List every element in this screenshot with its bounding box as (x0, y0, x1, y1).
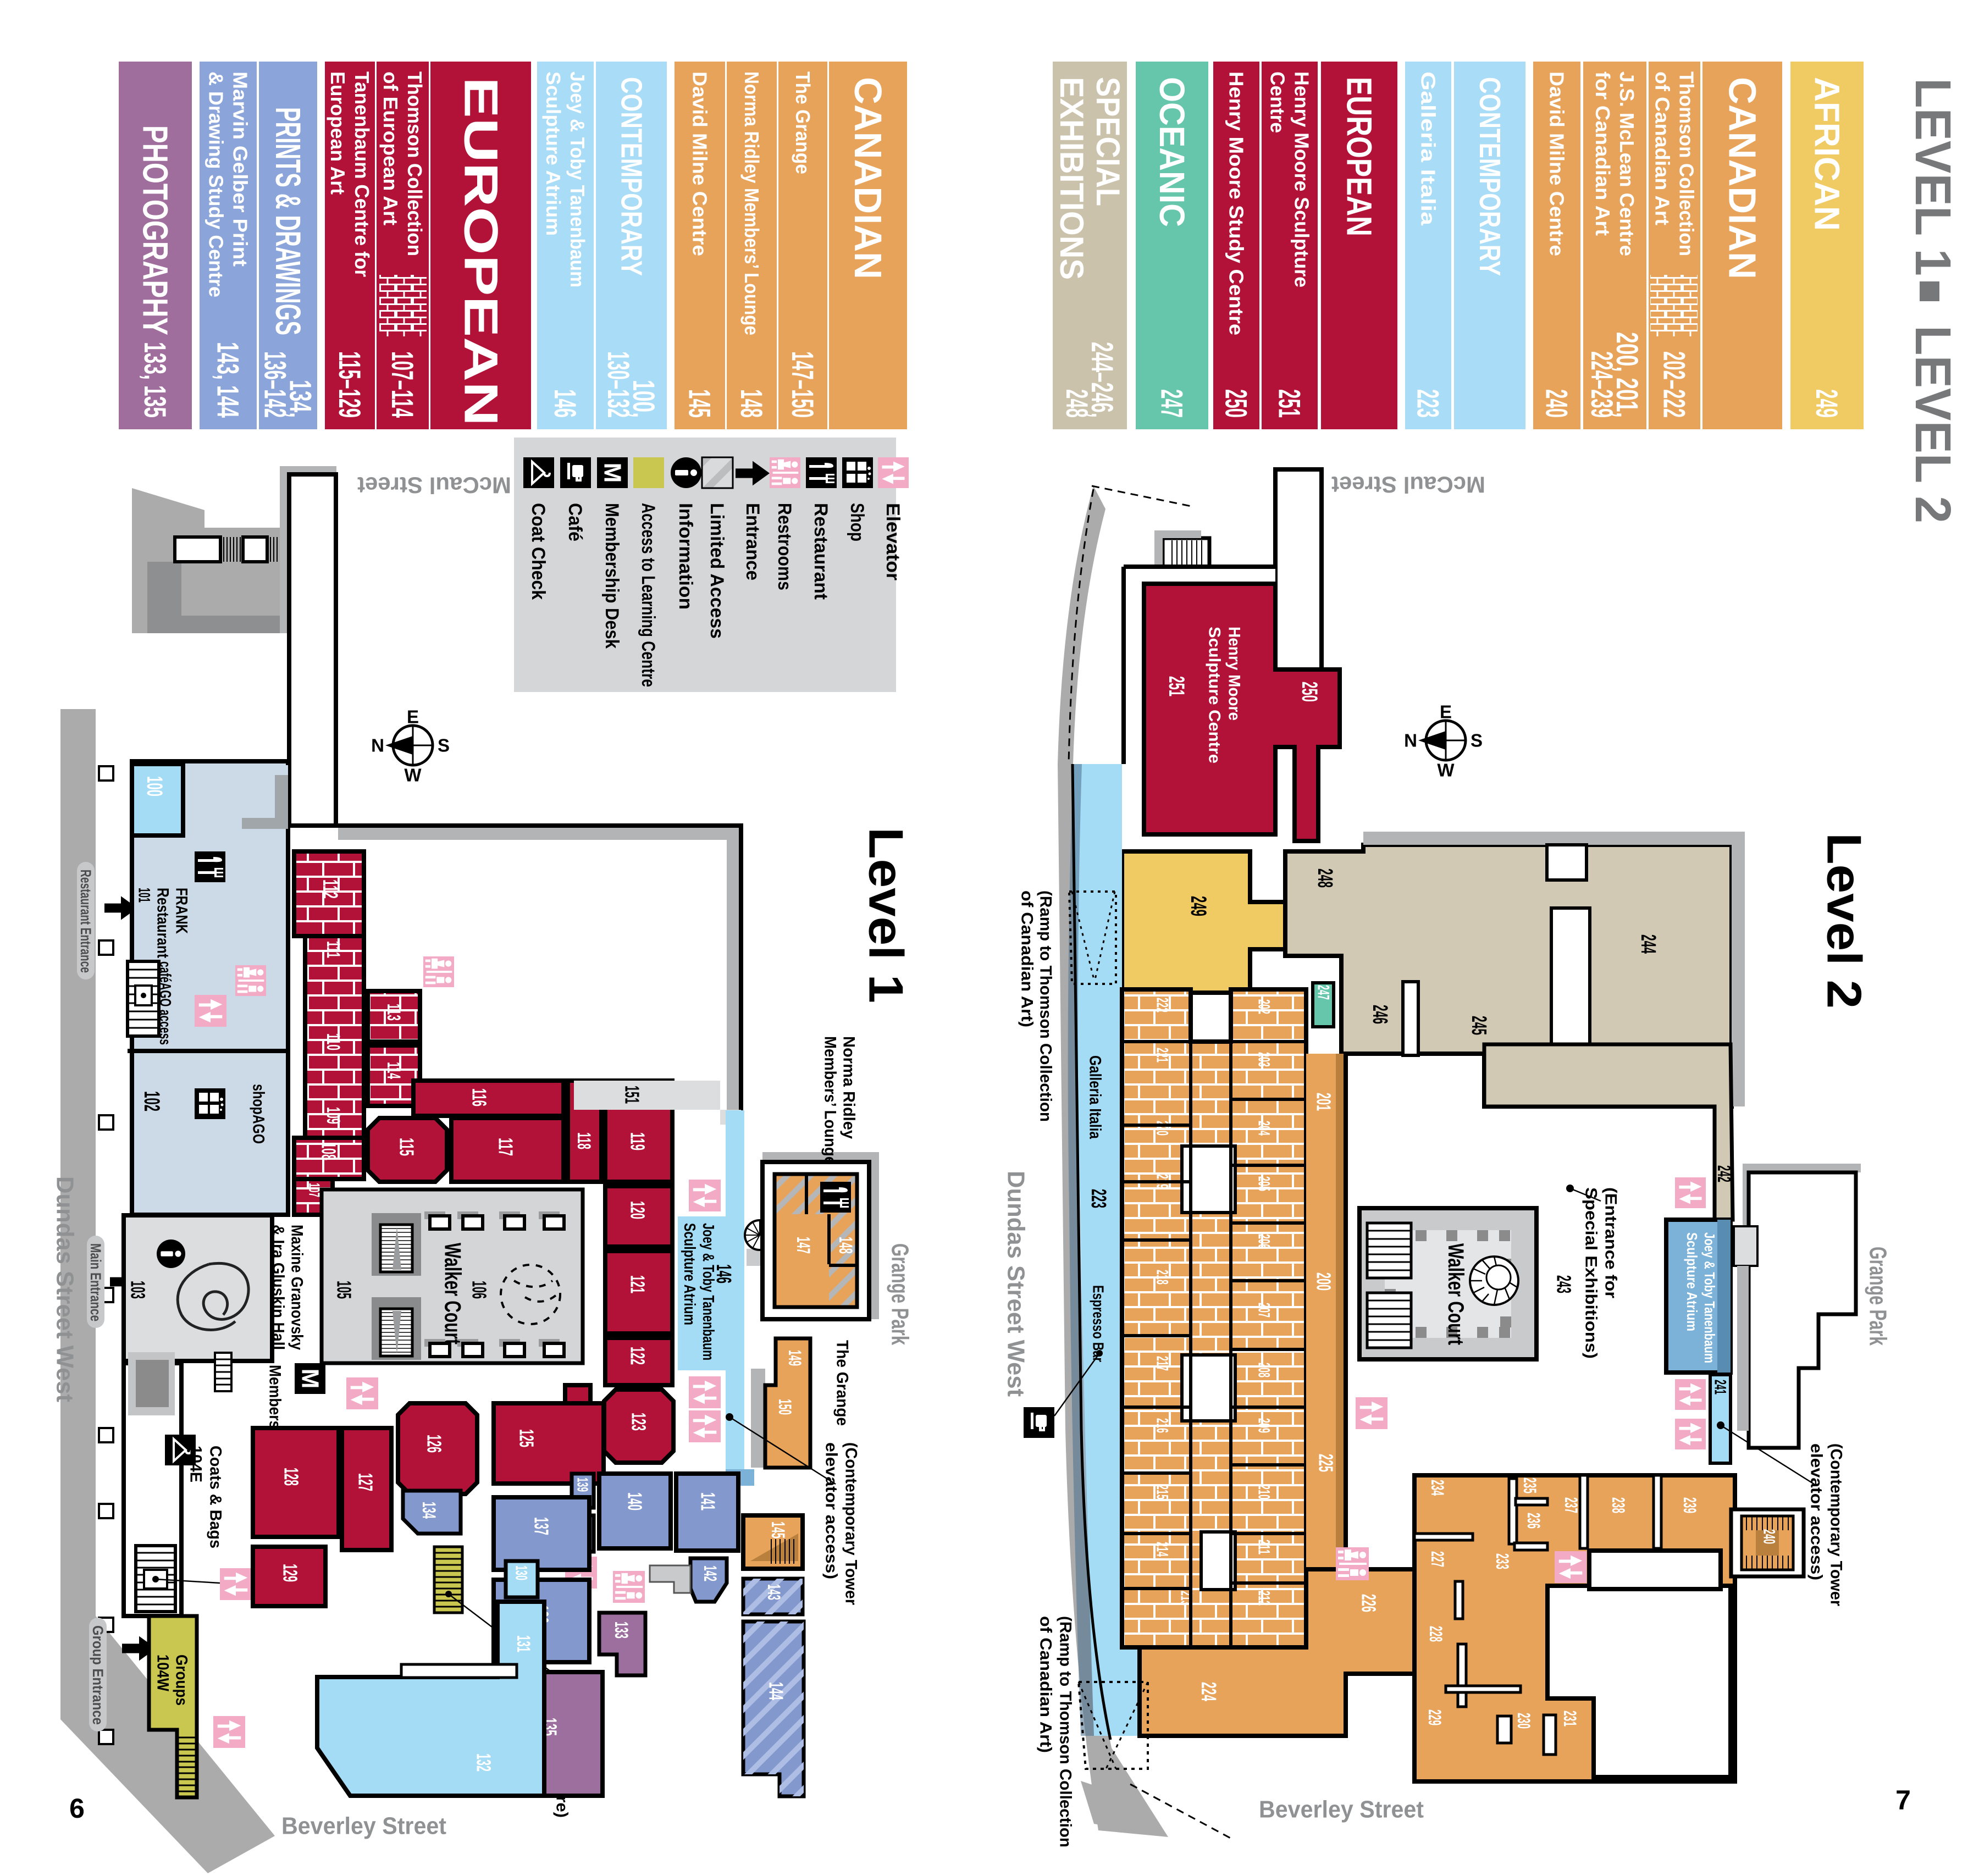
svg-text:120: 120 (627, 1201, 649, 1219)
svg-text:for Canadian Art: for Canadian Art (1591, 71, 1614, 236)
svg-text:229: 229 (1425, 1709, 1445, 1725)
svg-text:Coats & Bags: Coats & Bags (207, 1446, 225, 1548)
svg-text:129: 129 (279, 1564, 302, 1582)
svg-text:Entrance: Entrance (742, 503, 763, 580)
svg-text:Restaurant Entrance: Restaurant Entrance (78, 870, 94, 973)
svg-text:245: 245 (1467, 1016, 1490, 1035)
svg-text:McCaul Street: McCaul Street (357, 473, 511, 499)
svg-text:of Canadian Art): of Canadian Art) (1018, 890, 1036, 1027)
svg-text:222: 222 (1153, 998, 1171, 1012)
svg-text:250: 250 (1219, 389, 1254, 418)
svg-text:Special Exhibitions): Special Exhibitions) (1582, 1187, 1600, 1359)
svg-text:151: 151 (621, 1086, 644, 1104)
svg-text:214: 214 (1153, 1542, 1171, 1557)
svg-text:LEVEL 1: LEVEL 1 (1905, 78, 1961, 276)
svg-text:127: 127 (355, 1473, 377, 1491)
svg-text:elevator access): elevator access) (822, 1442, 841, 1579)
svg-text:Groups: Groups (173, 1654, 191, 1706)
svg-text:251: 251 (1164, 676, 1188, 696)
svg-text:136–142: 136–142 (258, 351, 293, 418)
svg-text:Marvin Gelber Print: Marvin Gelber Print (229, 71, 252, 267)
svg-text:231: 231 (1560, 1711, 1580, 1726)
svg-text:223: 223 (1087, 1189, 1110, 1208)
svg-text:M: M (297, 1369, 324, 1389)
svg-text:141: 141 (697, 1492, 720, 1510)
svg-text:224–239: 224–239 (1585, 351, 1619, 418)
svg-text:248: 248 (1313, 868, 1336, 888)
svg-text:250: 250 (1297, 682, 1322, 702)
svg-text:123: 123 (628, 1413, 650, 1431)
svg-text:142: 142 (700, 1565, 720, 1581)
svg-text:234: 234 (1428, 1480, 1447, 1496)
svg-text:EUROPEAN: EUROPEAN (455, 77, 507, 426)
svg-text:224: 224 (1197, 1682, 1220, 1701)
svg-text:218: 218 (1153, 1270, 1171, 1285)
svg-text:N: N (1404, 731, 1417, 751)
svg-text:elevator access): elevator access) (1807, 1443, 1826, 1580)
svg-text:240: 240 (1760, 1529, 1778, 1544)
svg-text:221: 221 (1153, 1048, 1171, 1062)
svg-text:118: 118 (573, 1132, 594, 1149)
svg-text:David Milne Centre: David Milne Centre (1546, 71, 1568, 256)
svg-text:Tanenbaum Centre for: Tanenbaum Centre for (351, 71, 373, 277)
svg-text:EUROPEAN: EUROPEAN (1340, 77, 1379, 236)
svg-text:Joey & Toby Tanenbaum: Joey & Toby Tanenbaum (1701, 1232, 1718, 1363)
svg-text:247: 247 (1155, 389, 1190, 418)
svg-text:202: 202 (1255, 999, 1273, 1014)
svg-text:139: 139 (574, 1477, 592, 1492)
svg-text:Sculpture Atrium: Sculpture Atrium (1684, 1232, 1700, 1331)
svg-text:(Contemporary Tower: (Contemporary Tower (1827, 1443, 1845, 1606)
svg-text:133: 133 (611, 1622, 632, 1639)
svg-text:103: 103 (127, 1281, 150, 1299)
svg-text:J.S. McLean Centre: J.S. McLean Centre (1616, 71, 1638, 256)
svg-text:209: 209 (1255, 1418, 1273, 1433)
svg-text:145: 145 (683, 389, 717, 418)
svg-text:7: 7 (1895, 1785, 1911, 1816)
svg-text:116: 116 (468, 1088, 491, 1106)
svg-text:235: 235 (1520, 1477, 1540, 1493)
svg-text:Joey & Toby Tanenbaum: Joey & Toby Tanenbaum (566, 71, 589, 287)
svg-text:246: 246 (1368, 1005, 1391, 1024)
svg-text:(Entrance for: (Entrance for (1602, 1187, 1620, 1298)
svg-text:215: 215 (1153, 1485, 1171, 1499)
svg-text:239: 239 (1680, 1497, 1700, 1513)
svg-text:115–129: 115–129 (333, 351, 367, 418)
svg-text:Thomson Collection: Thomson Collection (1676, 71, 1698, 256)
svg-text:SPECIAL: SPECIAL (1090, 77, 1126, 206)
svg-text:241: 241 (1711, 1380, 1729, 1394)
svg-text:213: 213 (1178, 1591, 1196, 1606)
svg-text:Membership Desk: Membership Desk (601, 503, 622, 649)
svg-text:(Ramp to Thomson Collection: (Ramp to Thomson Collection (1057, 1616, 1075, 1847)
svg-text:102: 102 (140, 1091, 164, 1111)
svg-text:114: 114 (383, 1062, 404, 1079)
svg-text:Beverley Street: Beverley Street (1259, 1796, 1424, 1823)
svg-text:220: 220 (1153, 1121, 1171, 1136)
svg-text:Information: Information (675, 503, 696, 610)
svg-text:147: 147 (793, 1237, 814, 1254)
svg-text:Henry Moore Sculpture: Henry Moore Sculpture (1291, 71, 1313, 287)
svg-text:McCaul Street: McCaul Street (1331, 472, 1485, 498)
svg-text:& Ira Gluskin Hall: & Ira Gluskin Hall (269, 1225, 288, 1350)
svg-text:237: 237 (1561, 1497, 1581, 1513)
svg-text:210: 210 (1255, 1485, 1273, 1499)
svg-text:PHOTOGRAPHY: PHOTOGRAPHY (136, 125, 175, 335)
svg-text:Café: Café (565, 503, 585, 541)
svg-text:Shop: Shop (847, 503, 867, 541)
svg-text:Henry Moore: Henry Moore (1225, 627, 1243, 721)
svg-text:Galleria Italia: Galleria Italia (1417, 71, 1440, 226)
svg-text:208: 208 (1255, 1363, 1273, 1377)
svg-text:Restrooms: Restrooms (774, 503, 795, 590)
svg-text:EXHIBITIONS: EXHIBITIONS (1053, 77, 1090, 280)
svg-text:E: E (1440, 702, 1452, 722)
svg-text:Galleria Italia: Galleria Italia (1086, 1055, 1104, 1139)
svg-text:of European Art: of European Art (379, 71, 402, 225)
svg-text:E: E (407, 707, 419, 727)
svg-text:CONTEMPORARY: CONTEMPORARY (1473, 77, 1506, 276)
svg-text:CONTEMPORARY: CONTEMPORARY (615, 77, 648, 276)
svg-text:European Art: European Art (327, 71, 349, 195)
svg-text:CANADIAN: CANADIAN (1721, 77, 1764, 279)
svg-text:140: 140 (624, 1492, 646, 1510)
svg-text:Level 1: Level 1 (859, 827, 914, 1003)
svg-text:OCEANIC: OCEANIC (1152, 77, 1192, 227)
svg-text:236: 236 (1524, 1513, 1544, 1529)
svg-text:Grange Park: Grange Park (887, 1243, 914, 1345)
svg-text:Restaurant: Restaurant (154, 888, 172, 958)
svg-text:113: 113 (383, 1004, 404, 1021)
svg-text:Access to Learning Centre: Access to Learning Centre (638, 503, 659, 687)
svg-text:LEVEL 2: LEVEL 2 (1905, 325, 1961, 523)
svg-text:Group Entrance: Group Entrance (90, 1625, 106, 1725)
svg-text:Dundas Street West: Dundas Street West (52, 1176, 79, 1402)
svg-text:200: 200 (1313, 1272, 1335, 1291)
svg-text:The Grange: The Grange (792, 71, 814, 174)
svg-text:227: 227 (1428, 1551, 1447, 1567)
svg-text:Level 2: Level 2 (1817, 833, 1872, 1009)
svg-text:202–222: 202–222 (1657, 351, 1692, 418)
svg-text:Norma Ridley Members’ Lounge: Norma Ridley Members’ Lounge (740, 71, 763, 335)
svg-text:CANADIAN: CANADIAN (847, 77, 889, 279)
svg-text:Centre: Centre (1267, 71, 1289, 133)
svg-text:David Milne Centre: David Milne Centre (689, 71, 711, 256)
svg-text:134: 134 (418, 1502, 439, 1519)
svg-text:230: 230 (1514, 1713, 1534, 1729)
svg-text:206: 206 (1255, 1234, 1273, 1249)
svg-text:S: S (438, 735, 450, 756)
svg-text:Walker Court: Walker Court (1444, 1243, 1468, 1345)
svg-text:143: 143 (764, 1584, 784, 1600)
svg-text:249: 249 (1186, 896, 1210, 916)
svg-text:S: S (1471, 731, 1483, 751)
svg-text:144: 144 (765, 1682, 788, 1700)
svg-text:238: 238 (1608, 1497, 1628, 1513)
svg-text:Grange Park: Grange Park (1865, 1247, 1892, 1346)
svg-text:106: 106 (468, 1281, 491, 1299)
svg-text:104W: 104W (154, 1654, 172, 1692)
svg-text:The Grange: The Grange (833, 1340, 852, 1426)
svg-text:148: 148 (734, 389, 769, 418)
svg-text:137: 137 (530, 1517, 553, 1535)
svg-text:Beverley Street: Beverley Street (281, 1813, 446, 1840)
svg-text:119: 119 (627, 1132, 649, 1150)
svg-text:207: 207 (1255, 1303, 1273, 1318)
svg-text:Dundas Street West: Dundas Street West (1003, 1171, 1030, 1397)
svg-text:Norma Ridley: Norma Ridley (840, 1036, 858, 1139)
svg-text:132: 132 (473, 1753, 495, 1772)
svg-text:145: 145 (767, 1521, 788, 1539)
svg-text:& Drawing Study Centre: & Drawing Study Centre (205, 71, 228, 297)
svg-text:228: 228 (1426, 1626, 1446, 1642)
svg-text:130: 130 (512, 1565, 530, 1580)
svg-text:233: 233 (1492, 1553, 1512, 1569)
svg-text:115: 115 (396, 1138, 418, 1156)
svg-text:Sculpture Atrium: Sculpture Atrium (542, 71, 565, 236)
svg-text:100: 100 (142, 776, 167, 796)
svg-text:Limited Access: Limited Access (706, 503, 727, 639)
svg-text:W: W (1437, 760, 1455, 781)
svg-text:105: 105 (333, 1281, 356, 1299)
svg-text:Elevator: Elevator (882, 503, 903, 580)
svg-text:Walker Court: Walker Court (440, 1243, 466, 1344)
svg-text:240: 240 (1540, 389, 1574, 418)
svg-text:211: 211 (1255, 1540, 1273, 1554)
svg-text:of Canadian Art): of Canadian Art) (1037, 1616, 1055, 1753)
svg-text:Maxine Granovsky: Maxine Granovsky (288, 1225, 306, 1350)
svg-text:N: N (371, 735, 384, 756)
svg-text:of Canadian Art: of Canadian Art (1651, 71, 1674, 225)
svg-text:243: 243 (1553, 1275, 1576, 1293)
svg-text:122: 122 (627, 1347, 649, 1365)
svg-text:143, 144: 143, 144 (211, 342, 246, 418)
svg-text:133, 135: 133, 135 (138, 342, 173, 418)
svg-text:247: 247 (1314, 985, 1333, 1000)
svg-text:Main Entrance: Main Entrance (87, 1243, 104, 1321)
svg-text:101: 101 (135, 888, 153, 903)
svg-text:130–132: 130–132 (601, 351, 636, 418)
svg-text:147–150: 147–150 (786, 351, 820, 418)
svg-text:M: M (599, 463, 626, 483)
svg-text:223: 223 (1411, 389, 1446, 418)
svg-text:Joey & Toby Tanenbaum: Joey & Toby Tanenbaum (699, 1223, 717, 1360)
svg-text:216: 216 (1153, 1418, 1171, 1433)
svg-text:110: 110 (323, 1033, 344, 1050)
svg-text:111: 111 (323, 941, 344, 958)
svg-text:Henry Moore Study Centre: Henry Moore Study Centre (1225, 71, 1248, 335)
svg-text:150: 150 (775, 1399, 795, 1415)
svg-text:107–114: 107–114 (385, 351, 420, 418)
svg-text:149: 149 (785, 1350, 805, 1366)
svg-text:242: 242 (1713, 1165, 1734, 1182)
svg-text:shopAGO: shopAGO (250, 1084, 268, 1144)
svg-text:128: 128 (280, 1468, 303, 1486)
svg-text:131: 131 (513, 1635, 534, 1652)
svg-text:109: 109 (323, 1107, 344, 1124)
svg-text:Members’ Lounge: Members’ Lounge (821, 1036, 839, 1165)
svg-text:112: 112 (318, 879, 341, 899)
svg-text:104E: 104E (187, 1446, 205, 1482)
svg-text:108: 108 (318, 1142, 340, 1160)
svg-text:Coat Check: Coat Check (528, 503, 549, 600)
svg-text:125: 125 (516, 1429, 538, 1447)
svg-text:6: 6 (69, 1793, 85, 1824)
svg-text:146: 146 (548, 389, 583, 418)
svg-text:(Contemporary Tower: (Contemporary Tower (842, 1442, 860, 1605)
svg-text:121: 121 (627, 1275, 649, 1293)
svg-text:PRINTS & DRAWINGS: PRINTS & DRAWINGS (268, 107, 308, 335)
svg-text:Restaurant: Restaurant (810, 503, 831, 600)
svg-text:203: 203 (1255, 1052, 1273, 1067)
svg-text:248: 248 (1060, 389, 1094, 418)
svg-text:201: 201 (1313, 1093, 1335, 1111)
svg-text:AFRICAN: AFRICAN (1807, 77, 1847, 231)
svg-text:225: 225 (1315, 1454, 1337, 1472)
svg-text:Sculpture Atrium: Sculpture Atrium (681, 1223, 698, 1325)
svg-text:Thomson Collection: Thomson Collection (403, 71, 426, 256)
svg-text:117: 117 (495, 1138, 517, 1156)
svg-text:251: 251 (1273, 389, 1307, 418)
svg-text:212: 212 (1255, 1591, 1273, 1606)
svg-text:217: 217 (1153, 1356, 1171, 1371)
svg-text:204: 204 (1255, 1121, 1273, 1136)
svg-text:205: 205 (1255, 1176, 1273, 1191)
svg-text:W: W (404, 765, 422, 785)
svg-text:Sculpture Centre: Sculpture Centre (1206, 627, 1224, 763)
svg-text:148: 148 (835, 1237, 856, 1254)
svg-text:249: 249 (1810, 389, 1844, 418)
svg-text:(Ramp to Thomson Collection: (Ramp to Thomson Collection (1037, 890, 1055, 1122)
svg-text:244: 244 (1637, 934, 1660, 954)
svg-text:226: 226 (1358, 1594, 1380, 1612)
svg-text:126: 126 (423, 1435, 446, 1453)
svg-text:FRANK: FRANK (173, 888, 191, 934)
